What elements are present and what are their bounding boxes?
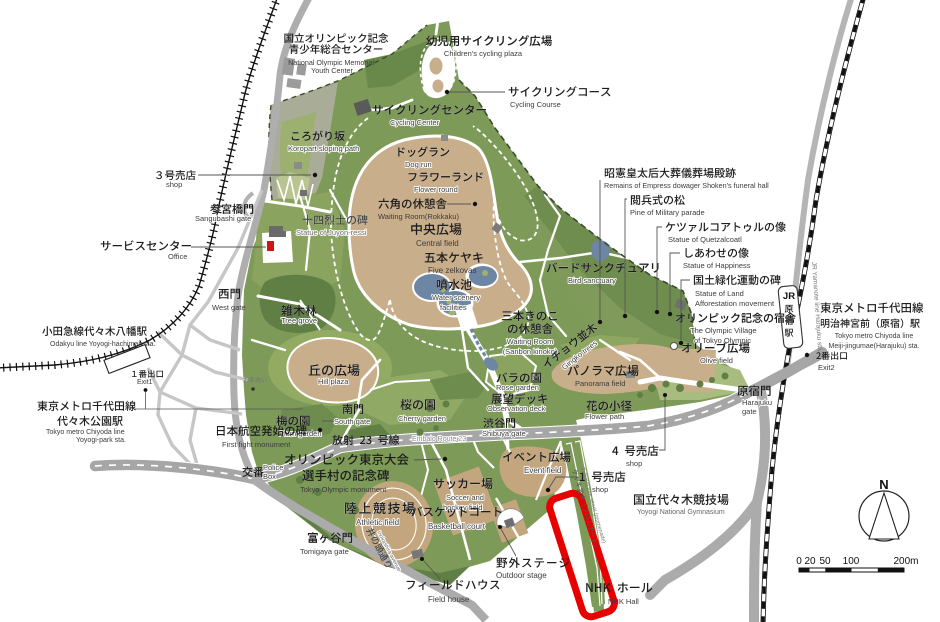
svg-text:West gate: West gate	[212, 303, 246, 312]
svg-text:NHK Hall: NHK Hall	[608, 597, 639, 606]
svg-text:(Sanbon kinoko): (Sanbon kinoko)	[503, 347, 558, 356]
svg-text:Flower round: Flower round	[414, 185, 458, 194]
svg-text:Pine of Military parade: Pine of Military parade	[630, 208, 705, 217]
svg-text:Children's cycling plaza: Children's cycling plaza	[444, 49, 523, 58]
svg-text:First fight monument: First fight monument	[222, 440, 291, 449]
svg-text:Soccer and: Soccer and	[446, 493, 484, 502]
svg-text:Statue of Juyon-ressi: Statue of Juyon-ressi	[296, 228, 367, 237]
svg-text:50: 50	[819, 556, 831, 567]
svg-text:shop: shop	[592, 485, 608, 494]
svg-text:Outdoor stage: Outdoor stage	[496, 571, 547, 580]
svg-text:Olive field: Olive field	[700, 356, 733, 365]
svg-text:0: 0	[796, 556, 802, 567]
svg-text:Koropart sloping path: Koropart sloping path	[288, 144, 359, 153]
svg-text:Waiting Room(Rokkaku): Waiting Room(Rokkaku)	[378, 212, 459, 221]
svg-text:South gate: South gate	[334, 417, 370, 426]
svg-text:Box: Box	[263, 472, 276, 481]
svg-text:Yoyogi-park sta.: Yoyogi-park sta.	[76, 437, 126, 444]
svg-text:of Tokyo Olympic: of Tokyo Olympic	[694, 336, 751, 345]
svg-text:Meiji-jingumae(Harajuku) sta.: Meiji-jingumae(Harajuku) sta.	[828, 343, 919, 350]
svg-text:gate: gate	[742, 407, 757, 416]
svg-text:shop: shop	[166, 180, 182, 189]
svg-text:Tokyo Olympic monument: Tokyo Olympic monument	[300, 485, 387, 494]
svg-text:Water scenery: Water scenery	[432, 293, 480, 302]
svg-text:The Olympic Village: The Olympic Village	[690, 326, 757, 335]
svg-text:Hill plaza: Hill plaza	[318, 377, 349, 386]
svg-text:Afforestation movement: Afforestation movement	[695, 299, 775, 308]
svg-text:Tokyo metro Chiyoda line: Tokyo metro Chiyoda line	[835, 333, 914, 340]
svg-text:Sangubashi gate: Sangubashi gate	[195, 214, 251, 223]
svg-text:100: 100	[843, 556, 860, 567]
svg-text:Cycling Center: Cycling Center	[390, 118, 440, 127]
svg-text:200m: 200m	[893, 556, 918, 567]
svg-text:Tree grove: Tree grove	[281, 316, 317, 325]
svg-text:Tokyo metro Chiyoda line: Tokyo metro Chiyoda line	[46, 429, 125, 436]
svg-text:20: 20	[804, 556, 816, 567]
svg-text:facilities: facilities	[440, 303, 467, 312]
svg-text:Panorama field: Panorama field	[575, 379, 625, 388]
svg-text:Exit1: Exit1	[137, 379, 153, 386]
svg-text:Basketball court: Basketball court	[428, 522, 486, 531]
svg-text:JR: JR	[783, 291, 795, 302]
svg-text:Field house: Field house	[428, 595, 470, 604]
svg-text:Rose garden: Rose garden	[496, 383, 539, 392]
svg-text:Cycling Course: Cycling Course	[510, 100, 561, 109]
svg-text:Central field: Central field	[416, 239, 459, 248]
svg-text:Waiting Room: Waiting Room	[507, 337, 554, 346]
svg-text:Tomigaya gate: Tomigaya gate	[300, 547, 349, 556]
svg-text:Statue of Land: Statue of Land	[695, 289, 744, 298]
svg-text:Observation deck: Observation deck	[487, 404, 546, 413]
svg-text:Office: Office	[168, 252, 187, 261]
svg-text:shop: shop	[626, 459, 642, 468]
svg-text:Police: Police	[263, 463, 283, 472]
svg-text:Five zelkovas: Five zelkovas	[428, 266, 476, 275]
svg-text:Remains of Empress dowager Sho: Remains of Empress dowager Shoken's fune…	[604, 181, 769, 190]
svg-text:Dog run: Dog run	[405, 160, 432, 169]
svg-text:Yoyogi National Gymnasium: Yoyogi National Gymnasium	[637, 509, 725, 516]
svg-text:Odakyu line Yoyogi-hachiman st: Odakyu line Yoyogi-hachiman sta.	[50, 341, 156, 348]
svg-text:Statue of Quetzalcoatl: Statue of Quetzalcoatl	[668, 235, 742, 244]
svg-text:Harajuku: Harajuku	[742, 398, 772, 407]
svg-text:Statue of Happiness: Statue of Happiness	[683, 261, 751, 270]
svg-text:Athletic field: Athletic field	[356, 518, 399, 527]
svg-text:Bird sanctuary: Bird sanctuary	[568, 276, 616, 285]
svg-text:Exit2: Exit2	[818, 363, 835, 372]
svg-text:Flower path: Flower path	[585, 412, 624, 421]
svg-text:N: N	[879, 477, 888, 492]
svg-text:Shibuya gate: Shibuya gate	[482, 429, 526, 438]
svg-text:Embalo Route 23: Embalo Route 23	[412, 436, 466, 443]
svg-text:Cherry garden: Cherry garden	[398, 414, 446, 423]
svg-text:Event field: Event field	[524, 466, 561, 475]
svg-text:Youth Center: Youth Center	[311, 66, 353, 75]
